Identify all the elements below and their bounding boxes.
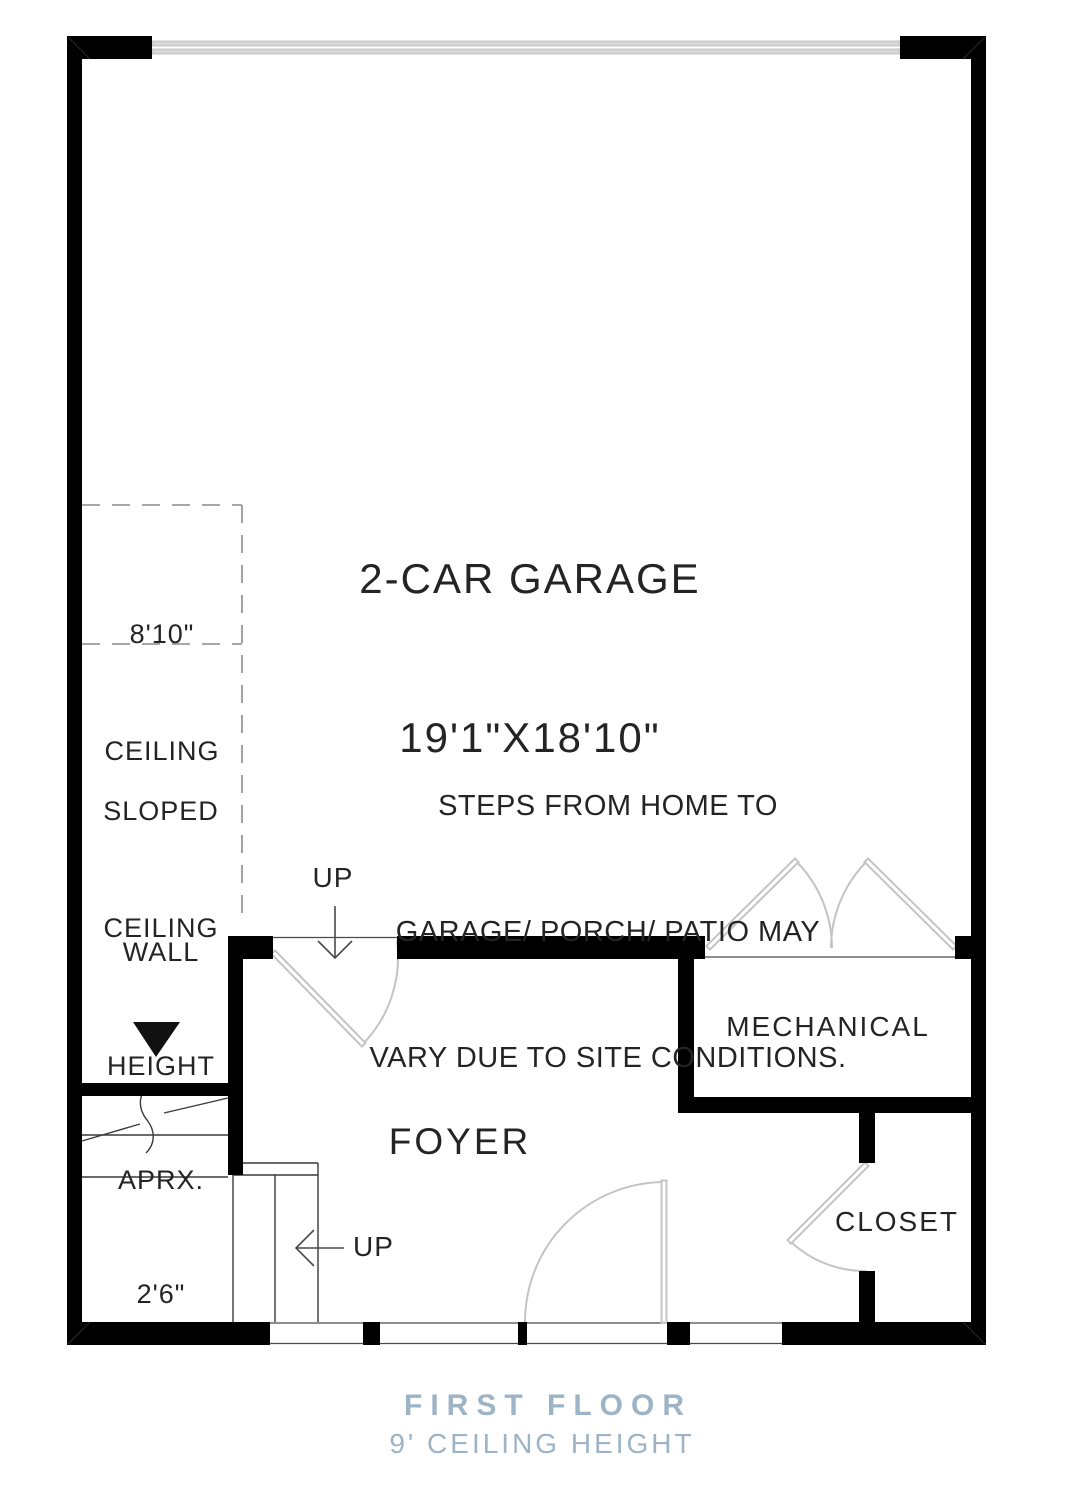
foyer-label: FOYER xyxy=(389,1121,531,1163)
up-label-top: UP xyxy=(313,862,354,894)
closet-label: CLOSET xyxy=(835,1206,959,1238)
stair-arrows xyxy=(296,906,352,1266)
wall-height-line-4: 2'6" xyxy=(107,1275,215,1313)
stair-treads xyxy=(233,1163,318,1322)
note-line-3: VARY DUE TO SITE CONDITIONS. xyxy=(369,1037,846,1079)
wall-height-line-2: HEIGHT xyxy=(107,1047,215,1085)
note-line-2: GARAGE/ PORCH/ PATIO MAY xyxy=(369,911,846,953)
wall-height-label: WALL HEIGHT APRX. 2'6" xyxy=(107,857,215,1389)
up-label-bottom: UP xyxy=(353,1231,394,1263)
note-line-1: STEPS FROM HOME TO xyxy=(369,785,846,827)
floor-plan: 2-CAR GARAGE 19'1"X18'10" STEPS FROM HOM… xyxy=(0,0,1080,1495)
site-conditions-note: STEPS FROM HOME TO GARAGE/ PORCH/ PATIO … xyxy=(369,701,846,1163)
ceiling-810-value: 8'10" xyxy=(104,615,219,654)
wall-height-line-3: APRX. xyxy=(107,1161,215,1199)
floor-subtitle: 9' CEILING HEIGHT xyxy=(389,1428,694,1460)
up-arrow-down-icon xyxy=(318,906,352,958)
floor-title: FIRST FLOOR xyxy=(404,1389,692,1423)
up-arrow-left-icon xyxy=(296,1230,344,1266)
front-door-arc xyxy=(525,1182,664,1322)
wall-height-line-1: WALL xyxy=(107,933,215,971)
garage-title: 2-CAR GARAGE xyxy=(359,552,700,605)
sloped-word: SLOPED xyxy=(103,792,219,831)
mechanical-label: MECHANICAL xyxy=(726,1011,930,1043)
garage-door xyxy=(152,41,900,54)
closet-door-arc xyxy=(790,1241,866,1271)
